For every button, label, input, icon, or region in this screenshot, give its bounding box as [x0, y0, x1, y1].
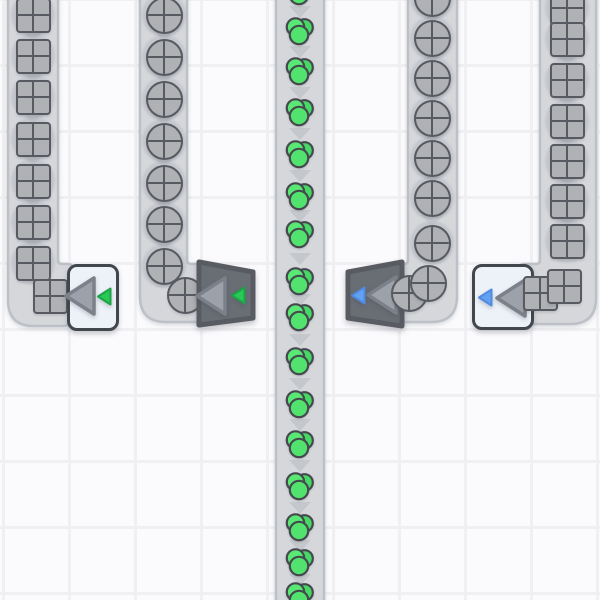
item-circle-shape	[410, 265, 447, 302]
item-square-shape	[16, 246, 51, 281]
belt-arrow-down-icon	[289, 334, 311, 346]
game-viewport	[0, 0, 600, 600]
belt-arrow-down-icon	[289, 170, 311, 182]
item-circle-shape	[414, 60, 451, 97]
item-circle-shape	[146, 165, 183, 202]
item-square-shape	[550, 63, 585, 98]
item-circle-shape	[146, 81, 183, 118]
item-green-cluster	[285, 182, 315, 212]
item-square-shape	[16, 122, 51, 157]
item-circle-shape	[146, 123, 183, 160]
arm-direction-arrow-icon	[63, 274, 97, 318]
item-circle-shape	[146, 206, 183, 243]
item-square-shape	[16, 205, 51, 240]
item-circle-shape	[414, 20, 451, 57]
arm-direction-arrow-icon	[194, 274, 228, 318]
item-green-cluster	[285, 303, 315, 333]
item-green-cluster	[285, 548, 315, 578]
item-square-shape	[550, 22, 585, 57]
item-green-cluster	[285, 57, 315, 87]
item-green-cluster	[285, 347, 315, 377]
item-square-shape	[547, 269, 582, 304]
belt-arrow-down-icon	[289, 128, 311, 140]
item-green-cluster	[285, 430, 315, 460]
filter-chip-blue-icon	[350, 285, 367, 306]
item-square-shape	[16, 39, 51, 74]
item-circle-shape	[414, 140, 451, 177]
item-green-cluster	[285, 98, 315, 128]
belt-arrow-down-icon	[289, 378, 311, 390]
filter-chip-green-icon	[96, 286, 113, 307]
item-green-cluster	[285, 140, 315, 170]
item-circle-shape	[414, 100, 451, 137]
item-square-shape	[16, 80, 51, 115]
filter-chip-green-icon	[230, 285, 247, 306]
belt-arrow-down-icon	[289, 460, 311, 472]
item-circle-shape	[146, 0, 183, 34]
item-green-cluster	[285, 220, 315, 250]
item-green-cluster	[285, 267, 315, 297]
item-circle-shape	[146, 39, 183, 76]
belt-arrow-down-icon	[289, 87, 311, 99]
item-green-cluster	[285, 17, 315, 47]
item-green-cluster	[285, 0, 315, 7]
belt-arrow-down-icon	[289, 253, 311, 265]
item-green-cluster	[285, 513, 315, 543]
item-square-shape	[550, 104, 585, 139]
item-green-cluster	[285, 390, 315, 420]
item-square-shape	[550, 184, 585, 219]
item-square-shape	[16, 164, 51, 199]
item-square-shape	[550, 224, 585, 259]
item-square-shape	[550, 144, 585, 179]
item-circle-shape	[414, 225, 451, 262]
filter-chip-blue-icon	[477, 287, 494, 308]
item-square-shape	[16, 0, 51, 33]
item-green-cluster	[285, 582, 315, 600]
item-green-cluster	[285, 472, 315, 502]
item-circle-shape	[414, 180, 451, 217]
belt-arrow-down-icon	[289, 502, 311, 514]
